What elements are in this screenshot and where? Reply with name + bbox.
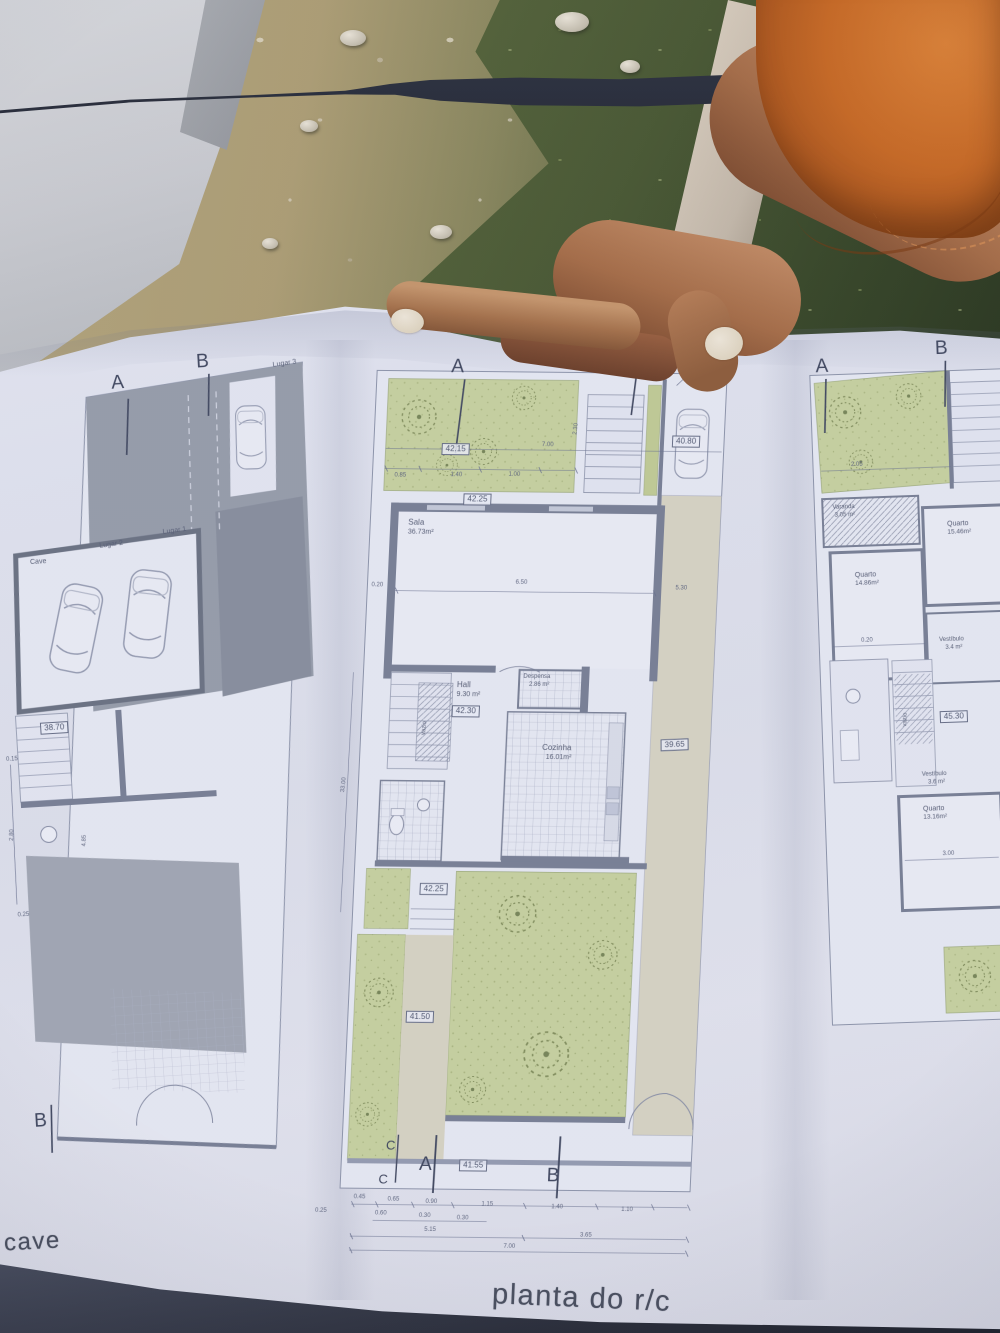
dimension-label: 3.65 <box>580 1233 592 1239</box>
dimension-label: 0.20 <box>371 582 383 588</box>
stone <box>620 60 640 73</box>
dimension-label: 3.00 <box>943 851 955 857</box>
dimension-label: 7.00 <box>542 442 554 448</box>
room-area-vestibulo: 3.4 m² <box>945 644 962 651</box>
room-label-sala: Sala <box>408 519 424 527</box>
section-marker: B <box>546 1166 560 1185</box>
stone <box>555 12 589 32</box>
ground-floor-plan: A B lugar de estac. 42.15 40.80 0.85 1.4… <box>297 352 798 1256</box>
room-label-varanda: Varanda <box>832 504 854 511</box>
dimension-label: 1.40 <box>551 1204 563 1210</box>
stone <box>262 238 278 249</box>
first-floor-plan: A B 2.05 Varanda 3.05 m² Quarto 15.46m² … <box>795 345 1000 1032</box>
dimension-label: 5.15 <box>424 1227 436 1233</box>
dimension-label: 2.05 <box>851 462 863 468</box>
room-area-quarto: 13.16m² <box>923 814 947 821</box>
room-area-cozinha: 16.01m² <box>546 754 572 761</box>
rc-plan-drawing <box>297 352 798 1256</box>
dimension-label: 0.20 <box>861 637 873 643</box>
stone <box>340 30 366 46</box>
elevation-badge: 42.15 <box>441 443 470 455</box>
elevation-badge: 41.55 <box>459 1159 488 1171</box>
room-label-cave: Cave <box>30 558 47 566</box>
dimension-label: 1.15 <box>481 1202 493 1208</box>
section-marker: B <box>196 352 210 372</box>
room-area-vestibulo: 3.6 m² <box>928 779 945 786</box>
room-label-hall: Hall <box>457 681 471 689</box>
section-marker: A <box>815 357 828 376</box>
stone <box>300 120 318 132</box>
room-label-quarto: Quarto <box>923 805 945 813</box>
dimension-label: 4.85 <box>82 835 88 847</box>
first-plan-drawing <box>795 344 1000 1031</box>
section-marker: A <box>111 373 125 393</box>
elevation-badge: 41.50 <box>406 1011 435 1023</box>
room-label-quarto: Quarto <box>947 520 969 528</box>
room-area-quarto: 15.46m² <box>947 529 971 536</box>
elevation-badge: 39.65 <box>661 738 689 751</box>
dimension-label: 5.30 <box>675 586 687 592</box>
dimension-label: 0.85 <box>394 473 406 479</box>
room-area-quarto: 14.86m² <box>855 580 879 587</box>
dimension-label: 0.30 <box>457 1215 469 1221</box>
elevation-badge: 42.25 <box>419 883 448 895</box>
plan-caption-cave: cave <box>3 1227 61 1258</box>
stone <box>430 225 452 239</box>
room-label-despensa: Despensa <box>523 674 550 680</box>
dimension-label: 0.25 <box>17 912 29 919</box>
room-area-varanda: 3.05 m² <box>835 512 856 519</box>
room-label-quarto: Quarto <box>855 571 877 579</box>
dimension-label: 7.00 <box>503 1244 515 1250</box>
elevation-badge: 42.30 <box>451 705 480 717</box>
section-marker: B <box>34 1111 48 1131</box>
room-area-despensa: 2.86 m² <box>529 682 550 688</box>
room-label-vestibulo: Vestíbulo <box>922 771 947 778</box>
section-marker: A <box>419 1155 433 1174</box>
photo-floor-plans-outdoors: A B B Lugar 3 Lugar 2 Lugar 1 Cave 38.70… <box>0 0 1000 1333</box>
room-label-vestibulo: Vestíbulo <box>939 636 964 643</box>
elevation-badge: 38.70 <box>40 721 69 735</box>
elevation-badge: 45.30 <box>940 710 968 723</box>
dimension-label: 6.50 <box>515 580 527 586</box>
dimension-label: 1.40 <box>450 472 462 478</box>
room-area-hall: 9.30 m² <box>456 691 480 698</box>
dimension-label: 1.10 <box>621 1207 633 1213</box>
section-marker: B <box>935 339 948 358</box>
dimension-label: 0.15 <box>6 756 18 763</box>
section-marker: C <box>386 1139 396 1152</box>
room-area-sala: 36.73m² <box>408 529 434 536</box>
dimension-label: 0.65 <box>387 1197 399 1203</box>
section-marker: C <box>378 1172 388 1185</box>
dimension-label: 0.60 <box>375 1210 387 1216</box>
void-label: vazio <box>902 712 908 726</box>
room-label-cozinha: Cozinha <box>542 744 572 752</box>
dimension-label: 1.00 <box>508 472 520 478</box>
dimension-label: 0.30 <box>419 1213 431 1219</box>
dimension-label: 0.25 <box>315 1208 327 1214</box>
elevation-badge: 42.25 <box>463 493 492 505</box>
elevation-badge: 40.80 <box>672 436 701 448</box>
dimension-label: 0.90 <box>425 1199 437 1205</box>
section-marker: A <box>451 357 465 376</box>
dimension-label: 0.45 <box>354 1194 366 1200</box>
dimension-label: 2.80 <box>9 829 15 841</box>
